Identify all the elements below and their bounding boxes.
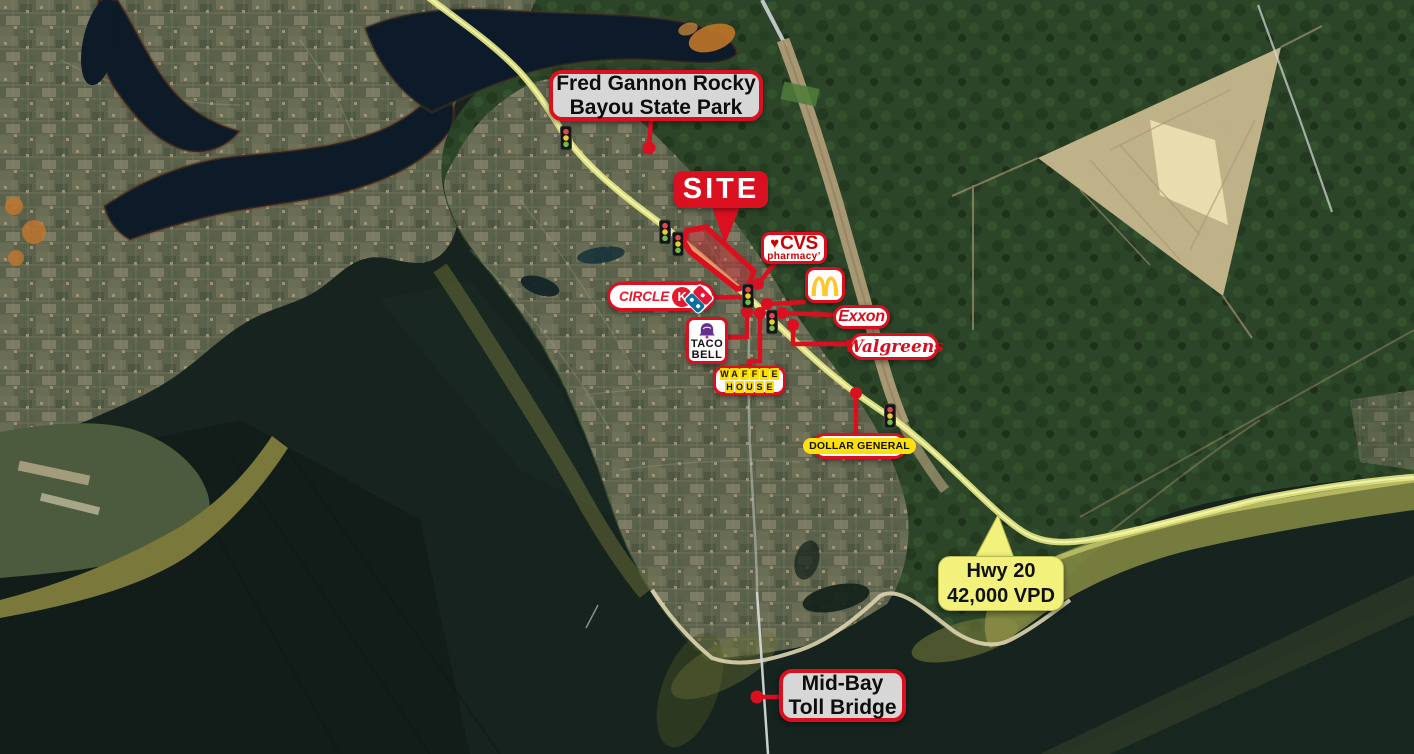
traffic-light-icon (743, 284, 754, 308)
hwy-callout-pointer (975, 515, 1014, 558)
waffle-house-row1: W A F F L E (720, 368, 780, 380)
waffle-tile: U (745, 381, 754, 393)
state-park-label-line1: Fred Gannon Rocky (556, 72, 756, 95)
taco-bell-logo: TACO BELL (686, 317, 728, 364)
dollar-general-logo: DOLLAR GENERAL (812, 433, 907, 459)
waffle-tile: E (765, 381, 774, 393)
traffic-light-icon (885, 404, 896, 428)
state-park-label-line2: Bayou State Park (570, 96, 743, 119)
cvs-heart-icon: ♥ (770, 237, 779, 251)
waffle-house-row2: H O U S E (725, 381, 775, 393)
waffle-tile: H (725, 381, 734, 393)
walgreens-logo: Walgreens (849, 333, 939, 360)
traffic-light-icon (673, 232, 684, 256)
poi-dots (643, 142, 863, 704)
traffic-light-icon (767, 310, 778, 334)
cvs-pharmacy-text: pharmacy’ (767, 252, 821, 261)
mid-bay-line2: Toll Bridge (788, 696, 896, 719)
hwy20-line1: Hwy 20 (967, 559, 1036, 584)
state-park-label: Fred Gannon Rocky Bayou State Park (549, 70, 763, 121)
waffle-tile: S (755, 381, 764, 393)
waffle-tile: A (730, 368, 739, 380)
hwy20-line2: 42,000 VPD (947, 584, 1055, 609)
exxon-logo: Exxon (833, 305, 890, 329)
site-label: SITE (674, 171, 768, 208)
golden-arches-icon (810, 272, 840, 298)
waffle-tile: L (760, 368, 769, 380)
dominos-tile-icon (680, 280, 718, 318)
exxon-wordmark: Exxon (838, 308, 885, 326)
waffle-tile: F (740, 368, 749, 380)
cvs-pharmacy-logo: ♥ CVS pharmacy’ (761, 232, 827, 264)
hwy20-traffic-callout: Hwy 20 42,000 VPD (938, 556, 1064, 611)
mid-bay-line1: Mid-Bay (802, 672, 884, 695)
waffle-tile: E (770, 368, 779, 380)
mid-bay-bridge-label: Mid-Bay Toll Bridge (779, 669, 906, 722)
traffic-light-icon (660, 220, 671, 244)
taco-bell-icon (695, 322, 719, 339)
walgreens-wordmark: Walgreens (844, 337, 944, 357)
waffle-house-logo: W A F F L E H O U S E (713, 366, 786, 395)
dollar-general-wordmark: DOLLAR GENERAL (803, 438, 916, 454)
circle-k-wordmark: CIRCLE (619, 289, 669, 304)
waffle-tile: W (720, 368, 729, 380)
waffle-tile: O (735, 381, 744, 393)
site-label-text: SITE (683, 173, 759, 206)
circle-k-logo: CIRCLE K (607, 282, 715, 311)
traffic-light-icon (561, 126, 572, 150)
aerial-site-map: Fred Gannon Rocky Bayou State Park SITE … (0, 0, 1414, 754)
taco-bell-text-line2: BELL (692, 350, 723, 361)
cvs-wordmark: CVS (780, 235, 818, 252)
waffle-tile: F (750, 368, 759, 380)
mcdonalds-logo (805, 267, 845, 303)
